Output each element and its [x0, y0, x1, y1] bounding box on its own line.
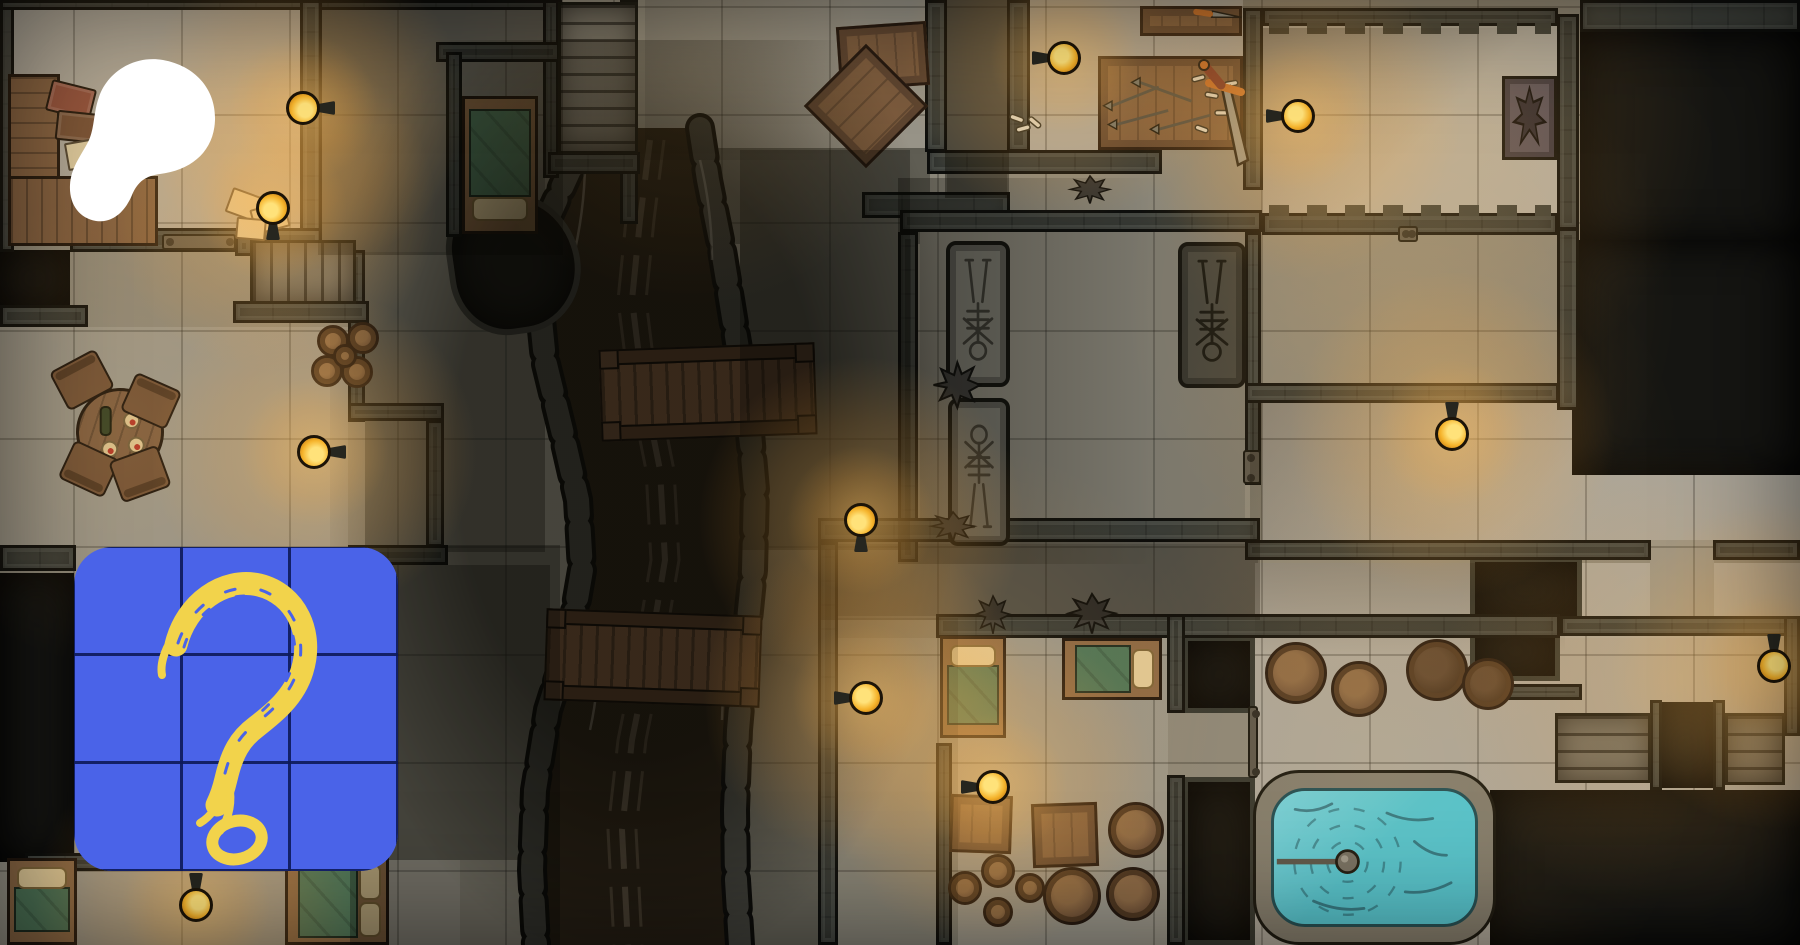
bed-pillow	[17, 867, 67, 889]
bed	[940, 636, 1006, 738]
bed	[7, 858, 77, 945]
barrel	[948, 871, 982, 905]
wall-segment	[548, 152, 640, 174]
torch-flame-icon	[976, 770, 1010, 804]
door	[1248, 706, 1258, 778]
bridge-post	[794, 342, 815, 363]
wall-segment	[1713, 700, 1725, 790]
tomb	[1178, 242, 1246, 388]
wall-segment	[927, 150, 1162, 174]
wall-segment	[1713, 540, 1800, 560]
skeleton-engraving	[1182, 246, 1242, 384]
question-tile	[74, 547, 398, 871]
barrel	[1462, 658, 1514, 710]
fountain	[1274, 791, 1475, 924]
wall-segment	[1245, 232, 1261, 485]
door	[1243, 450, 1261, 484]
question-mark-icon	[74, 547, 398, 871]
patreon-blob	[70, 59, 215, 221]
gargoyle-statue	[926, 360, 980, 410]
torch	[1281, 99, 1315, 133]
wall-segment	[1557, 14, 1579, 230]
bridge-post	[797, 414, 818, 435]
bridge	[598, 342, 817, 441]
torch-flame-icon	[1435, 417, 1469, 451]
bed-pillow	[950, 645, 996, 667]
wall-segment	[900, 210, 1262, 232]
torch-flame-icon	[179, 888, 213, 922]
stairs	[558, 2, 638, 154]
void-area	[1655, 702, 1715, 788]
torch-flame-icon	[297, 435, 331, 469]
bed-blanket	[298, 863, 358, 938]
wall-segment	[233, 301, 369, 323]
bed-pillow	[472, 197, 528, 221]
wall-segment	[818, 542, 838, 945]
dungeon-map-canvas	[0, 0, 1800, 945]
pool-water	[1271, 788, 1478, 927]
torch-flame-icon	[1757, 649, 1791, 683]
alcove-figure	[1511, 85, 1548, 151]
barrel	[1265, 642, 1327, 704]
pool	[1253, 770, 1496, 945]
bridge-post	[598, 349, 619, 370]
barrel	[1106, 867, 1160, 921]
bridge-post	[543, 680, 564, 701]
door	[1398, 226, 1418, 242]
barrel	[1331, 661, 1387, 717]
torch-flame-icon	[1281, 99, 1315, 133]
wall-segment	[0, 0, 562, 10]
door-knob	[1247, 454, 1255, 462]
bed-blanket	[1075, 645, 1131, 693]
wall-segment	[898, 232, 918, 562]
torch-flame-icon	[1047, 41, 1081, 75]
door-knob	[1252, 710, 1260, 718]
door-knob	[1252, 768, 1260, 776]
door-knob	[226, 238, 234, 246]
crate	[1031, 802, 1099, 868]
void-area	[1183, 777, 1255, 945]
torch	[844, 503, 878, 537]
wine-bottle	[100, 406, 112, 436]
bridge-planks	[544, 622, 762, 693]
bed-blanket	[14, 887, 70, 932]
wall-segment	[1650, 700, 1662, 790]
barrel	[983, 897, 1013, 927]
door	[162, 234, 236, 250]
wall-segment	[1557, 228, 1579, 410]
bridge-post	[739, 687, 760, 708]
wall-segment	[0, 305, 88, 327]
torch-flame-icon	[849, 681, 883, 715]
bed-blanket	[469, 109, 531, 197]
torch	[1047, 41, 1081, 75]
door-knob	[166, 238, 174, 246]
stairs	[1725, 713, 1785, 785]
wall-segment	[1245, 383, 1559, 403]
torch	[286, 91, 320, 125]
stairs	[1555, 713, 1651, 783]
void-area	[0, 573, 74, 862]
patreon-logo-icon	[66, 56, 216, 224]
torch	[256, 191, 290, 225]
wall-segment	[818, 518, 1260, 542]
battlement-notches	[1269, 23, 1551, 34]
torch	[849, 681, 883, 715]
void-area	[1572, 240, 1800, 475]
torch-flame-icon	[256, 191, 290, 225]
torch	[179, 888, 213, 922]
bridge-post	[742, 615, 763, 636]
battlement-notches	[1269, 205, 1551, 216]
bed-blanket	[947, 665, 999, 725]
bones	[1006, 110, 1044, 136]
barrel	[1015, 873, 1045, 903]
void-area	[1490, 790, 1800, 945]
torch	[297, 435, 331, 469]
torch	[976, 770, 1010, 804]
wall-segment	[446, 52, 462, 237]
gargoyle-statue	[974, 596, 1012, 640]
stairs	[250, 240, 356, 304]
torch-flame-icon	[286, 91, 320, 125]
void-area	[1580, 32, 1800, 244]
wall-segment	[1245, 540, 1651, 560]
wall-segment	[936, 614, 1560, 638]
alcove-statue	[1502, 76, 1557, 160]
bed	[1062, 638, 1162, 700]
torch	[1435, 417, 1469, 451]
food	[107, 447, 115, 455]
wall-segment	[1262, 8, 1558, 26]
door-knob	[1247, 474, 1255, 482]
bed-pillow	[1132, 649, 1154, 689]
wall-segment	[1580, 0, 1800, 32]
gargoyle-statue	[1068, 176, 1112, 208]
wall-segment	[426, 420, 444, 547]
void-area	[0, 250, 70, 307]
wall-segment	[1560, 616, 1800, 636]
wall-segment	[1167, 614, 1185, 713]
void-area	[1183, 636, 1255, 713]
bed-pillow	[359, 902, 381, 938]
bed	[462, 96, 538, 234]
torch-flame-icon	[844, 503, 878, 537]
bridge-post	[601, 421, 622, 442]
wall-segment	[348, 403, 444, 421]
bridge-post	[546, 608, 567, 629]
barrel	[1043, 867, 1101, 925]
gargoyle-statue	[929, 512, 977, 546]
barrel	[333, 344, 357, 368]
barrel	[981, 854, 1015, 888]
wall-segment	[300, 0, 322, 252]
gargoyle-statue	[1066, 594, 1118, 640]
barrel	[1406, 639, 1468, 701]
sword	[1196, 54, 1252, 170]
bridge	[543, 608, 762, 707]
barrel	[1108, 802, 1164, 858]
torch	[1757, 649, 1791, 683]
wall-segment	[1167, 775, 1185, 945]
bridge-planks	[599, 356, 817, 427]
door-knob	[1408, 230, 1416, 238]
food	[129, 419, 137, 427]
wall-segment	[0, 545, 76, 571]
